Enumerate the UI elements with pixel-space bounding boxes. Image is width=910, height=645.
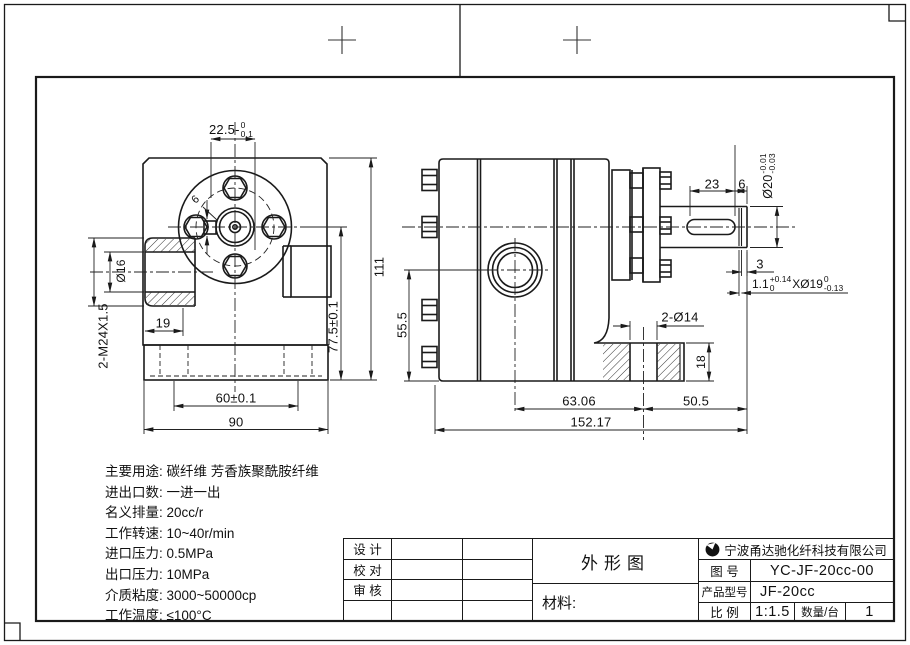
drawing-title: 外形图 (532, 538, 699, 584)
qty-value: 1 (845, 602, 894, 622)
dim-side-len-hole-shaft: 50.5 (683, 395, 709, 408)
hatch-port-top (146, 239, 195, 252)
outlet-boss (283, 246, 331, 297)
dim-front-port-depth: 19 (156, 317, 171, 330)
audit-name-cell (391, 579, 463, 601)
company-logo (705, 542, 720, 557)
base-hidden-lines (150, 345, 322, 376)
material-label: 材料: (532, 583, 699, 621)
scale-label: 比 例 (698, 602, 751, 622)
model-value: JF-20cc (750, 581, 894, 603)
dim-side-key-length: 23 (705, 178, 720, 191)
dim-front-thread: 2-M24X1.5 (97, 303, 110, 368)
spec-line: 进口压力: 0.5MPa (105, 544, 319, 565)
company-cell: 宁波甬达驰化纤科技有限公司 (698, 538, 894, 560)
spec-line: 出口压力: 10MPa (105, 565, 319, 586)
hatch-foot-right (657, 344, 680, 380)
housing-bolts (422, 170, 437, 368)
design-date-cell (462, 538, 533, 560)
scale-value: 1:1.5 (750, 602, 795, 622)
dim-side-end-step: 3 (756, 258, 763, 271)
blank-name-cell (391, 600, 463, 622)
flange-side-bolts (660, 172, 671, 277)
blank-label-cell (343, 600, 392, 622)
audit-date-cell (462, 579, 533, 601)
drawing-no: YC-JF-20cc-00 (750, 559, 894, 582)
dim-side-port-height: 55.5 (396, 312, 409, 338)
dim-front-base-width: 90 (229, 416, 244, 429)
dim-side-shaft-tip: 6 (738, 178, 745, 191)
dim-side-len-total: 152.17 (571, 416, 612, 429)
company-name: 宁波甬达驰化纤科技有限公司 (724, 540, 887, 559)
check-label-cell: 校 对 (343, 559, 392, 581)
design-label-cell: 设 计 (343, 538, 392, 560)
front-view (88, 122, 377, 434)
check-name-cell (391, 559, 463, 581)
drawing-sheet: 22.5-00.1 6 Ø16 2-M24X1.5 19 60±0.1 90 7… (0, 0, 910, 645)
hatch-foot-left (603, 344, 630, 380)
spec-line: 介质粘度: 3000~50000cp (105, 586, 319, 607)
audit-label-cell: 审 核 (343, 579, 392, 601)
hatch-port-bottom (146, 293, 195, 306)
spec-line: 名义排量: 20cc/r (105, 503, 319, 524)
spec-line: 进出口数: 一进一出 (105, 483, 319, 504)
dim-side-groove: 1.1+0.140XØ190-0.13 (752, 275, 843, 293)
check-date-cell (462, 559, 533, 581)
blank-date-cell (462, 600, 533, 622)
qty-label: 数量/台 (794, 602, 846, 622)
centerlines-front (90, 122, 302, 392)
dim-front-width: 22.5-00.1 (209, 121, 253, 139)
drawing-no-label: 图 号 (698, 559, 751, 582)
design-name-cell (391, 538, 463, 560)
dim-side-shaft-dia: Ø20-0.01-0.03 (759, 153, 777, 199)
spec-line: 工作转速: 10~40r/min (105, 524, 319, 545)
centerlines-side (402, 227, 795, 440)
dim-front-total-height: 111 (373, 257, 386, 277)
dim-side-foot-holes: 2-Ø14 (661, 311, 698, 324)
dim-front-bore: Ø16 (115, 259, 127, 282)
dim-front-port-height: 77.5±0.1 (327, 301, 340, 353)
spec-notes: 主要用途: 碳纤维 芳香族聚酰胺纤维 进出口数: 一进一出 名义排量: 20cc… (105, 462, 319, 627)
shaft-flange (612, 168, 660, 282)
spec-line: 主要用途: 碳纤维 芳香族聚酰胺纤维 (105, 462, 319, 483)
dim-front-hole-spacing: 60±0.1 (216, 392, 257, 405)
dim-side-foot-height: 18 (695, 355, 707, 369)
model-label: 产品型号 (698, 581, 751, 603)
spec-line: 工作温度: ≤100°C (105, 606, 319, 627)
dim-side-len-port-hole: 63.06 (562, 395, 596, 408)
